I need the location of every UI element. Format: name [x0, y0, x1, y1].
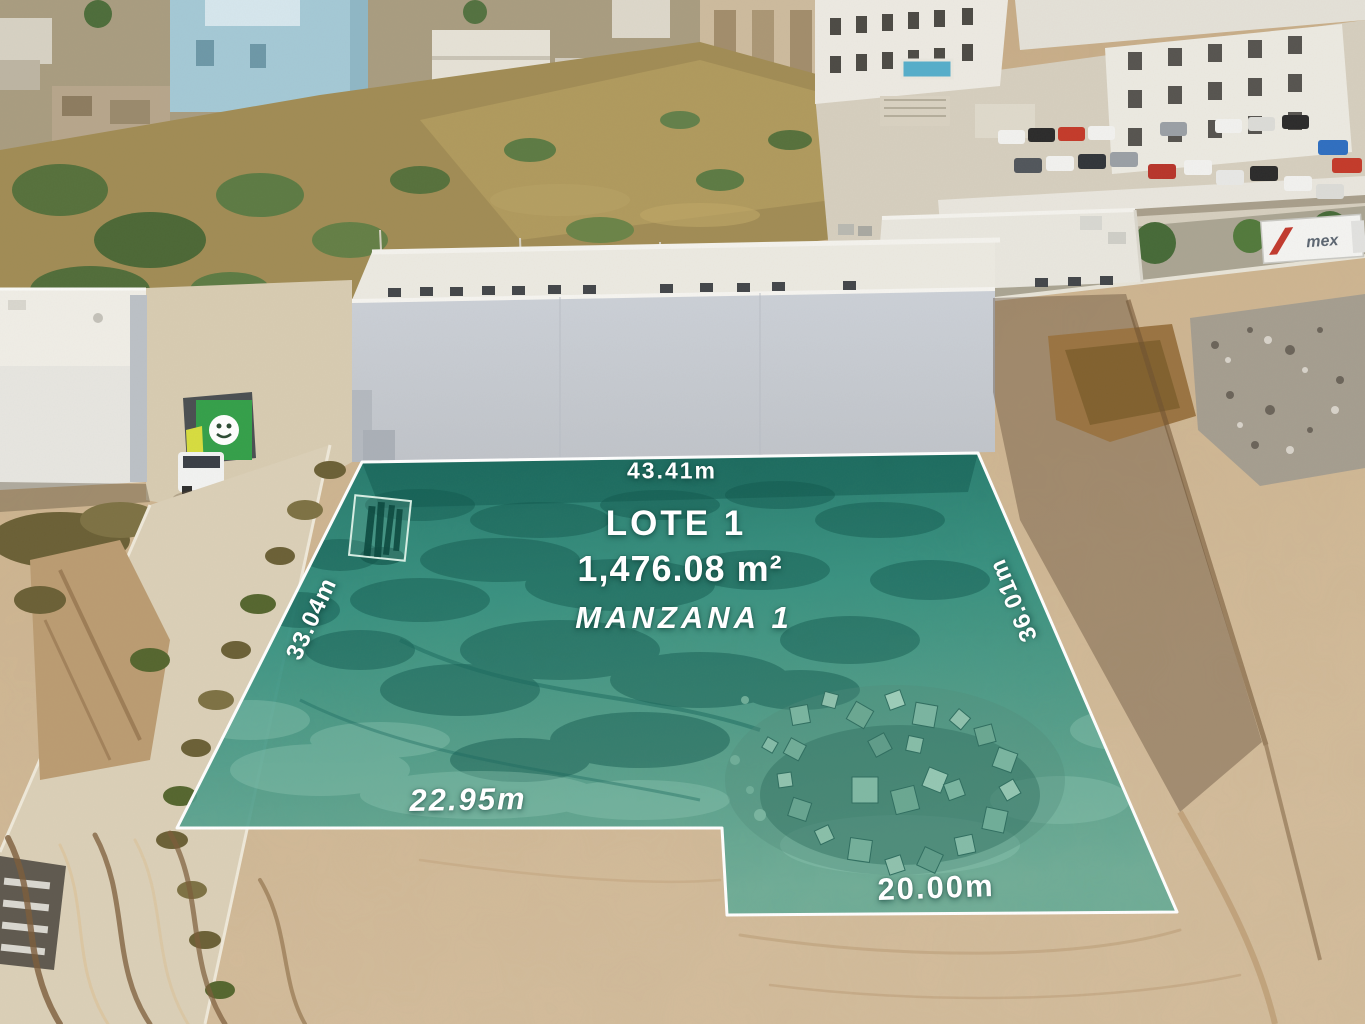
aerial-lot-photo: mex — [0, 0, 1365, 1024]
dimension-label-top: 43.41m — [627, 458, 717, 485]
lot-block: MANZANA 1 — [575, 600, 792, 636]
dimension-label-bottom-left: 22.95m — [409, 781, 527, 819]
lot-title: LOTE 1 — [606, 504, 747, 544]
lot-area: 1,476.08 m² — [577, 548, 782, 590]
dimension-label-bottom-right: 20.00m — [877, 868, 995, 908]
